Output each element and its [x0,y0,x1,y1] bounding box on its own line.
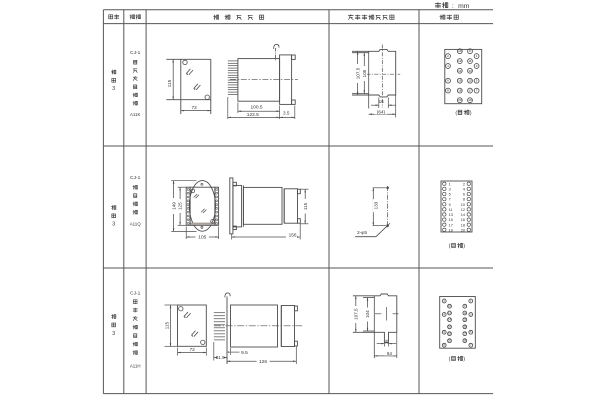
svg-text:1: 1 [449,182,451,186]
svg-text:19: 19 [468,98,472,102]
svg-text:156: 156 [289,233,297,239]
svg-text:149: 149 [171,202,176,210]
svg-text:17: 17 [468,89,472,93]
svg-text:104: 104 [365,310,370,318]
svg-text:8: 8 [463,198,465,202]
svg-text:126: 126 [259,359,267,365]
svg-text:3: 3 [112,331,115,337]
svg-text:115: 115 [164,321,170,329]
svg-text:CJ-1: CJ-1 [130,50,141,56]
svg-text:16: 16 [461,218,465,222]
svg-text:(: ( [455,110,457,116]
svg-text:13: 13 [468,69,472,73]
svg-text:72: 72 [190,347,196,353]
svg-text:115: 115 [167,79,173,87]
svg-text:15: 15 [449,218,453,222]
svg-text:72: 72 [192,105,198,111]
svg-text:): ) [463,357,465,363]
svg-text:A11K: A11K [130,112,140,117]
svg-text:12: 12 [458,59,462,63]
svg-text:107.5: 107.5 [354,308,359,320]
svg-text:100.5: 100.5 [250,104,262,110]
svg-text:14: 14 [461,213,465,217]
svg-text:115: 115 [303,202,308,210]
svg-text:125: 125 [178,202,183,210]
svg-text:(64): (64) [377,109,386,114]
svg-text:107.5: 107.5 [355,67,360,79]
svg-text:16: 16 [384,339,389,344]
svg-text::: : [452,3,454,10]
svg-text:133: 133 [374,201,379,209]
svg-text:18: 18 [461,223,465,227]
svg-text:9.5: 9.5 [241,350,248,356]
svg-text:10: 10 [461,203,465,207]
svg-text:3: 3 [112,222,115,228]
svg-text:20: 20 [461,228,465,232]
svg-text:13: 13 [449,213,453,217]
svg-text:(: ( [449,244,451,250]
svg-text:11: 11 [468,59,471,63]
svg-text:11: 11 [449,208,453,212]
svg-text:105: 105 [362,69,367,77]
svg-text:4: 4 [463,188,465,192]
svg-text:5: 5 [449,193,451,197]
svg-text:19: 19 [449,228,453,232]
svg-text:16: 16 [379,99,385,104]
svg-text:122.5: 122.5 [247,112,259,118]
svg-text:105: 105 [198,235,206,241]
svg-text:3: 3 [449,188,451,192]
svg-text:3.5: 3.5 [283,111,290,116]
svg-text:): ) [463,244,465,250]
svg-text:15: 15 [468,79,472,83]
svg-text:14: 14 [458,69,462,73]
svg-text:7: 7 [449,198,451,202]
svg-text:(: ( [449,357,451,363]
svg-text:31.5: 31.5 [216,355,225,360]
svg-text:9: 9 [449,203,451,207]
svg-text:2-φ5: 2-φ5 [357,230,367,236]
svg-text:): ) [470,110,472,116]
svg-text:20: 20 [458,98,462,102]
svg-text:A11H: A11H [130,364,141,369]
svg-text:12: 12 [461,208,465,212]
svg-text:16: 16 [458,79,462,83]
svg-text:A11Q: A11Q [130,221,141,226]
svg-text:18: 18 [458,89,462,93]
svg-text:6: 6 [463,193,465,197]
svg-text:2: 2 [463,182,465,186]
svg-text:64: 64 [387,351,393,356]
svg-text:17: 17 [449,223,453,227]
svg-text:CJ-1: CJ-1 [130,175,141,181]
svg-text:3: 3 [112,86,115,92]
svg-text:mm: mm [458,3,470,10]
svg-text:10: 10 [458,49,462,53]
svg-text:CJ-1: CJ-1 [130,290,141,296]
